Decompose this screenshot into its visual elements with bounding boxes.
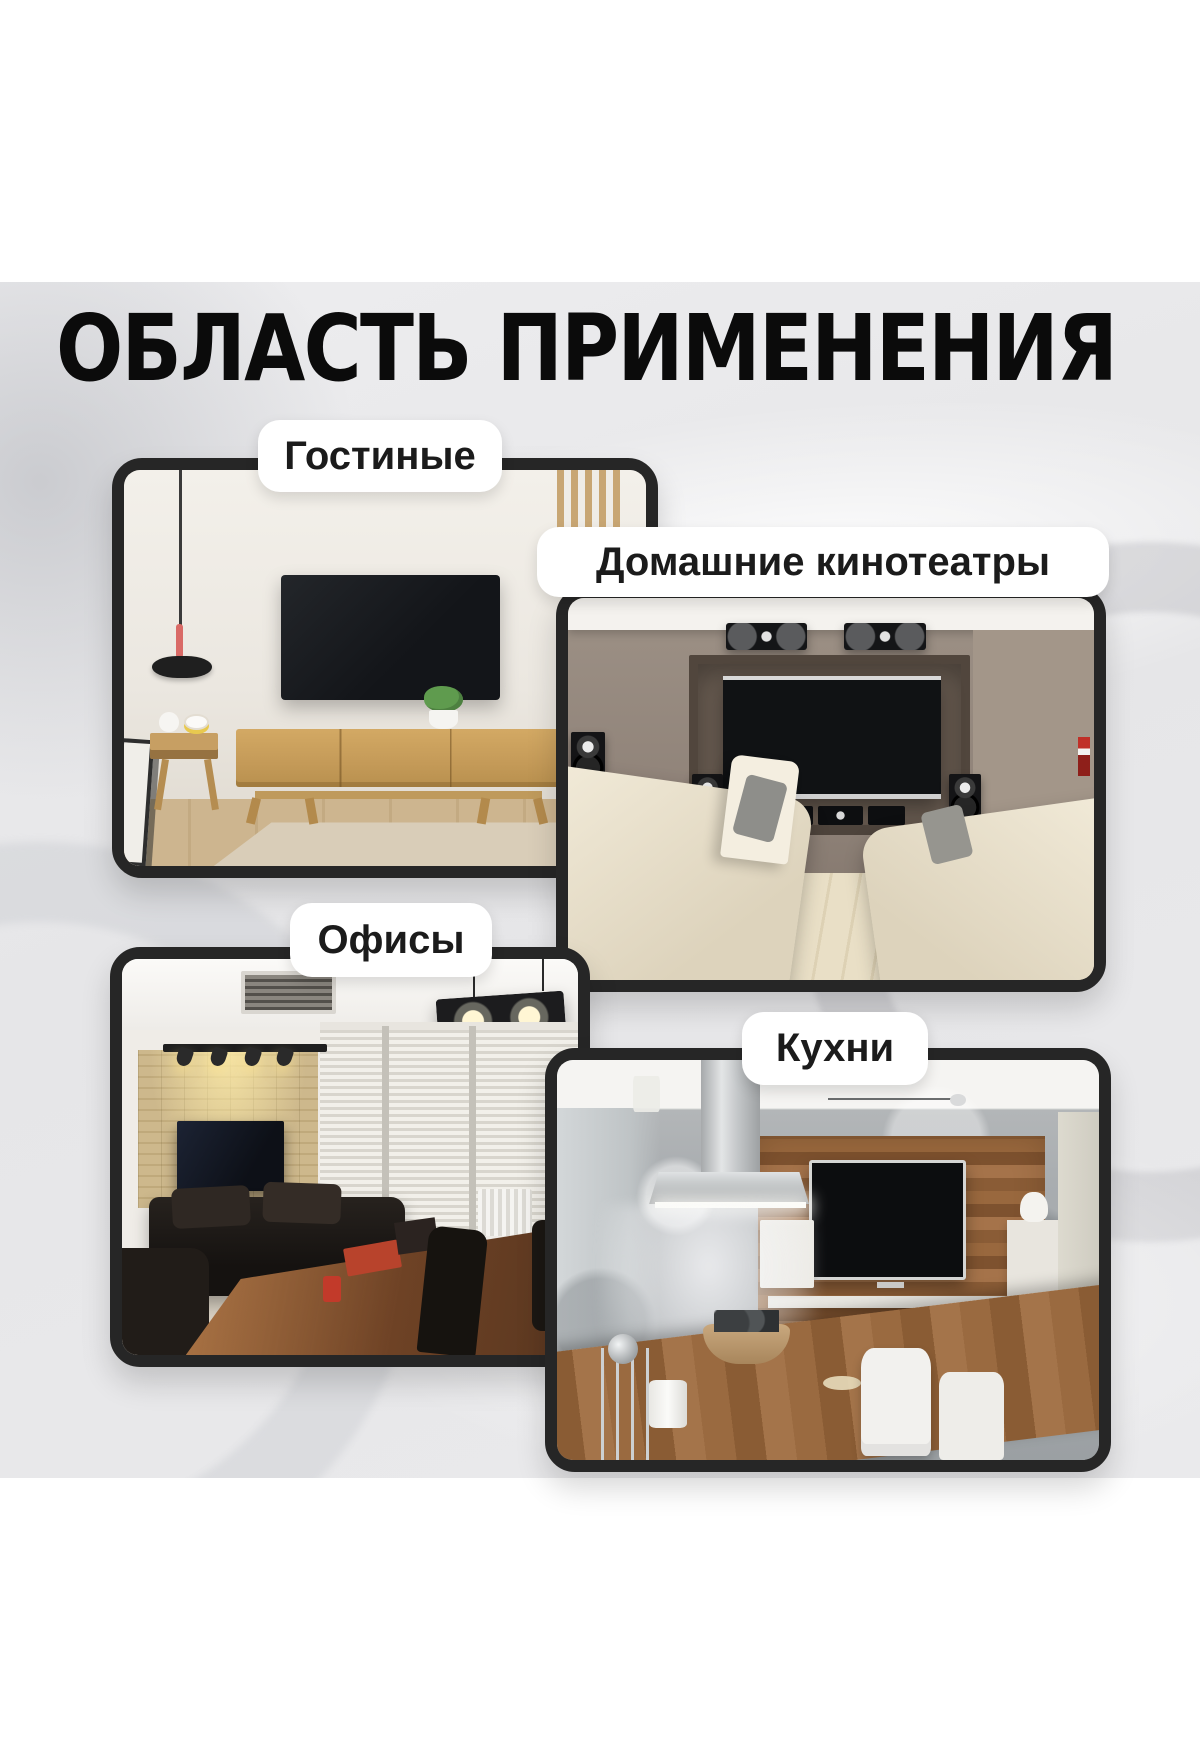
photo-home-theater [568, 598, 1094, 980]
label-living-rooms-text: Гостиные [284, 434, 476, 479]
ceiling [568, 598, 1094, 630]
leather-armchair [122, 1248, 209, 1355]
pendant-lamp [152, 656, 212, 678]
center-speaker [726, 623, 808, 650]
red-bottle [1078, 737, 1090, 775]
ceiling-light-rail [828, 1098, 958, 1100]
pendant-lamp-cord-accent [176, 624, 183, 658]
wall-tv [281, 575, 500, 700]
side-table [150, 733, 218, 759]
photo-office [122, 959, 578, 1355]
tv-stand [877, 1282, 904, 1288]
white-pitcher [1020, 1192, 1047, 1222]
sofa-cushion [263, 1181, 342, 1223]
bar-stool [861, 1348, 931, 1456]
coaster [823, 1376, 861, 1390]
label-kitchens: Кухни [742, 1012, 928, 1085]
card-home-theaters: Домашние кинотеатры [556, 586, 1106, 992]
ceiling-lamp [633, 1076, 660, 1112]
label-offices: Офисы [290, 903, 492, 977]
lamp-cord [542, 959, 544, 991]
bar-stool [939, 1372, 1004, 1460]
red-candle [323, 1276, 341, 1302]
utensil-stand [595, 1348, 649, 1460]
pendant-lamp-cord [179, 470, 182, 628]
card-offices: Офисы [110, 947, 590, 1367]
label-kitchens-text: Кухни [776, 1026, 894, 1071]
wall-tv [809, 1160, 966, 1280]
range-hood-canopy [649, 1172, 809, 1204]
tv-console [236, 729, 560, 786]
av-receiver [868, 806, 905, 825]
white-jug [159, 712, 179, 733]
center-speaker [844, 623, 926, 650]
decorative-stones [714, 1310, 779, 1332]
page-title: ОБЛАСТЬ ПРИМЕНЕНИЯ [56, 303, 1116, 395]
window-mullion [469, 1026, 476, 1232]
label-offices-text: Офисы [317, 918, 464, 963]
wall-tv [177, 1121, 284, 1190]
radiator [478, 1189, 533, 1237]
av-receiver [818, 806, 863, 825]
plant [424, 686, 463, 712]
plant-pot [429, 710, 458, 730]
tv-console-shelf [255, 791, 542, 799]
label-home-theaters-text: Домашние кинотеатры [596, 540, 1050, 585]
paper-towel-roll [649, 1380, 687, 1428]
table-clock [184, 714, 209, 731]
window-top-bar [320, 1022, 578, 1030]
ceiling-vent [241, 971, 337, 1015]
sofa-cushion [171, 1185, 250, 1229]
product-infographic: ОБЛАСТЬ ПРИМЕНЕНИЯ Гостин [0, 0, 1200, 1760]
label-living-rooms: Гостиные [258, 420, 502, 492]
card-kitchens: Кухни [545, 1048, 1111, 1472]
label-home-theaters: Домашние кинотеатры [537, 527, 1109, 597]
photo-kitchen [557, 1060, 1099, 1460]
